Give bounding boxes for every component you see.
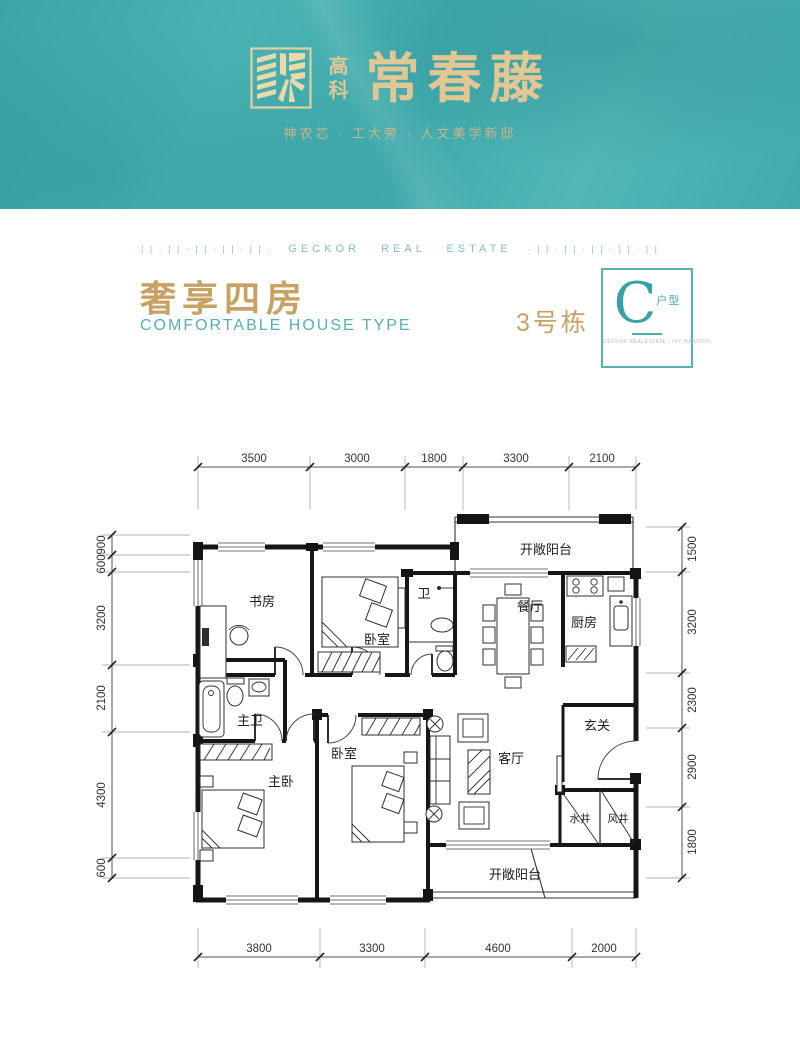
brand-logo-icon	[249, 46, 313, 110]
dim-chain-left: 900 600 3200 2100 4300 600	[96, 531, 116, 882]
room-label-living: 客厅	[498, 751, 524, 766]
room-label-bedroom-top: 卧室	[364, 632, 390, 647]
dim-label: 3500	[241, 453, 267, 465]
building-label: 3号栋	[516, 303, 589, 339]
room-label-master-bedroom: 主卧	[268, 774, 294, 789]
page-subtitle: COMFORTABLE HOUSE TYPE	[140, 317, 412, 335]
dim-extensions	[102, 456, 690, 968]
type-badge-main: C户型	[603, 276, 691, 332]
brand-tagline: 神农芯 · 工大旁 · 人文美学新邸	[0, 123, 800, 142]
divider-right-ticks: · | | · | | · | | · | | · | |	[528, 244, 659, 254]
badge-caption: GECKOR REALESTATE|IVY MANSION	[603, 339, 691, 345]
logo-row: 高 科 常春藤	[0, 0, 800, 110]
dim-label: 600	[96, 858, 108, 877]
dim-chain-bottom: 3800 3300 4600 2000	[194, 943, 640, 961]
type-badge: C户型 GECKOR REALESTATE|IVY MANSION	[601, 268, 693, 368]
page-title: 奢享四房	[140, 270, 308, 322]
dim-label: 3000	[344, 453, 370, 465]
dim-label: 2100	[96, 685, 108, 711]
dim-chain-top: 3500 3000 1800 3300 2100	[194, 453, 640, 471]
floorplan-svg: 3500 3000 1800 3300 2100 3800 3300 4600 …	[90, 430, 730, 1010]
dim-label: 3800	[246, 943, 272, 955]
type-suffix: 户型	[656, 295, 680, 307]
divider-label: GECKOR REAL ESTATE	[288, 243, 511, 255]
brand-name: 常春藤	[366, 51, 552, 105]
dim-label: 3200	[687, 609, 699, 635]
brand-prefix: 高 科	[329, 54, 350, 102]
brand-prefix-bottom: 科	[329, 78, 350, 102]
type-letter: C	[614, 271, 657, 336]
dim-label: 600	[96, 554, 108, 573]
poster-page: 高 科 常春藤 神农芯 · 工大旁 · 人文美学新邸 | | · | | · |…	[0, 0, 800, 1060]
room-label-water-shaft: 水井	[570, 812, 591, 825]
dim-label: 3300	[359, 943, 385, 955]
dim-label: 1800	[687, 829, 699, 855]
dim-label: 900	[96, 535, 108, 554]
dim-label: 3300	[503, 453, 529, 465]
badge-caption-left: GECKOR REALESTATE	[603, 339, 666, 345]
dim-label: 1800	[421, 453, 447, 465]
dim-label: 4600	[485, 943, 511, 955]
room-label-balcony-bottom: 开敞阳台	[489, 867, 541, 882]
dim-label: 2000	[591, 943, 617, 955]
room-label-master-bath: 主卫	[237, 713, 263, 728]
dim-label: 2300	[687, 687, 699, 713]
room-label-bath: 卫	[417, 586, 430, 601]
room-label-balcony-top: 开敞阳台	[520, 542, 572, 557]
hero-banner: 高 科 常春藤 神农芯 · 工大旁 · 人文美学新邸	[0, 0, 800, 209]
room-label-study: 书房	[249, 594, 275, 609]
divider-left-ticks: | | · | | · | | · | | · | | ·	[141, 244, 272, 254]
dim-chain-right: 1500 3200 2300 2900 1800	[678, 523, 699, 882]
brand-prefix-top: 高	[329, 54, 350, 78]
dim-label: 2900	[687, 754, 699, 780]
dim-label: 2100	[589, 453, 615, 465]
room-label-bedroom-mid: 卧室	[331, 746, 357, 761]
room-label-foyer: 玄关	[584, 718, 610, 733]
dim-label: 3200	[96, 605, 108, 631]
room-label-air-shaft: 风井	[608, 812, 629, 825]
dim-label: 1500	[687, 536, 699, 562]
room-label-dining: 餐厅	[517, 599, 543, 614]
badge-caption-right: IVY MANSION	[672, 339, 710, 345]
tick-divider: | | · | | · | | · | | · | | · GECKOR REA…	[0, 243, 800, 255]
room-label-kitchen: 厨房	[571, 615, 597, 630]
dim-label: 4300	[96, 782, 108, 808]
